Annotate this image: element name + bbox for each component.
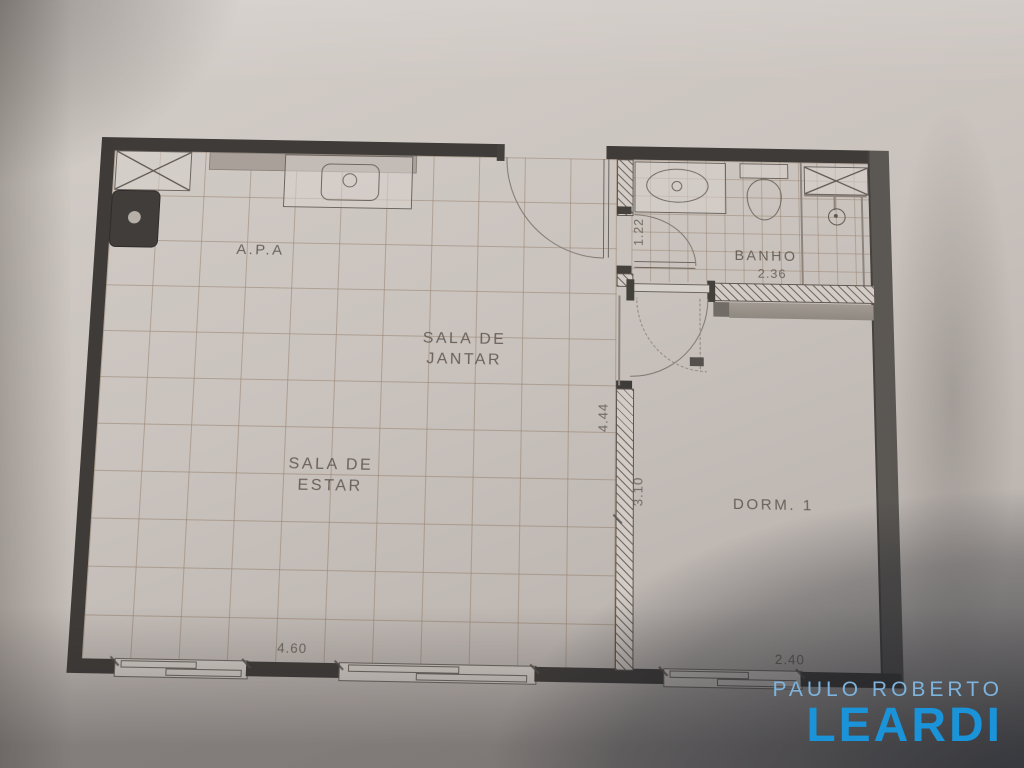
cabinet-x-icon	[114, 150, 192, 191]
room-label-bedroom: DORM. 1	[703, 493, 845, 517]
room-label-living-line2: ESTAR	[249, 474, 411, 498]
door-jamb	[617, 206, 632, 214]
shower-box-icon	[804, 166, 869, 195]
wall-right	[867, 151, 904, 689]
shower-head-icon	[828, 208, 846, 225]
door-stop-bracket	[690, 357, 704, 366]
dim-bathroom-width: 2.36	[743, 266, 802, 282]
wall-living-bedroom-divider	[615, 388, 634, 670]
room-label-living-line1: SALA DE	[250, 453, 412, 477]
dim-living-length: 4.44	[595, 395, 610, 439]
window	[114, 658, 249, 680]
floor-plan: A.P.A SALA DE JANTAR SALA DE ESTAR BANHO…	[59, 131, 923, 708]
photo-of-floor-plan: A.P.A SALA DE JANTAR SALA DE ESTAR BANHO…	[0, 0, 1024, 768]
room-label-apa: A.P.A	[201, 239, 320, 261]
wall-bottom-pier	[66, 658, 114, 674]
wardrobe-band	[729, 302, 874, 320]
wall-bathroom-bottom	[711, 283, 875, 304]
dim-bedroom-length: 3.10	[630, 469, 645, 514]
toilet-tank	[739, 163, 788, 179]
door-jamb	[497, 144, 505, 161]
window	[338, 662, 536, 685]
dim-bathroom-entry: 1.22	[631, 211, 646, 253]
brand-line-leardi: LEARDI	[772, 702, 1003, 750]
room-label-living: SALA DE ESTAR	[249, 453, 412, 498]
hall-boundary-line	[618, 295, 620, 385]
room-label-dining-line2: JANTAR	[384, 348, 543, 372]
wardrobe-block	[713, 302, 729, 317]
bedroom-door-leaf	[634, 283, 709, 293]
room-label-bathroom: BANHO	[717, 246, 816, 268]
shower-head-dot	[834, 214, 838, 218]
wall-bottom-pier	[534, 667, 663, 684]
room-label-dining: SALA DE JANTAR	[384, 327, 544, 371]
brand-watermark: PAULO ROBERTO LEARDI	[772, 678, 1003, 750]
stove-burner	[128, 211, 141, 224]
wall-bottom-pier	[246, 661, 339, 678]
dim-bedroom-width: 2.40	[759, 651, 821, 668]
door-jamb	[617, 266, 632, 274]
room-label-dining-line1: SALA DE	[385, 327, 544, 350]
dim-living-width: 4.60	[261, 640, 323, 657]
stove-icon	[109, 190, 161, 248]
bathroom-sink-drain	[672, 181, 683, 192]
